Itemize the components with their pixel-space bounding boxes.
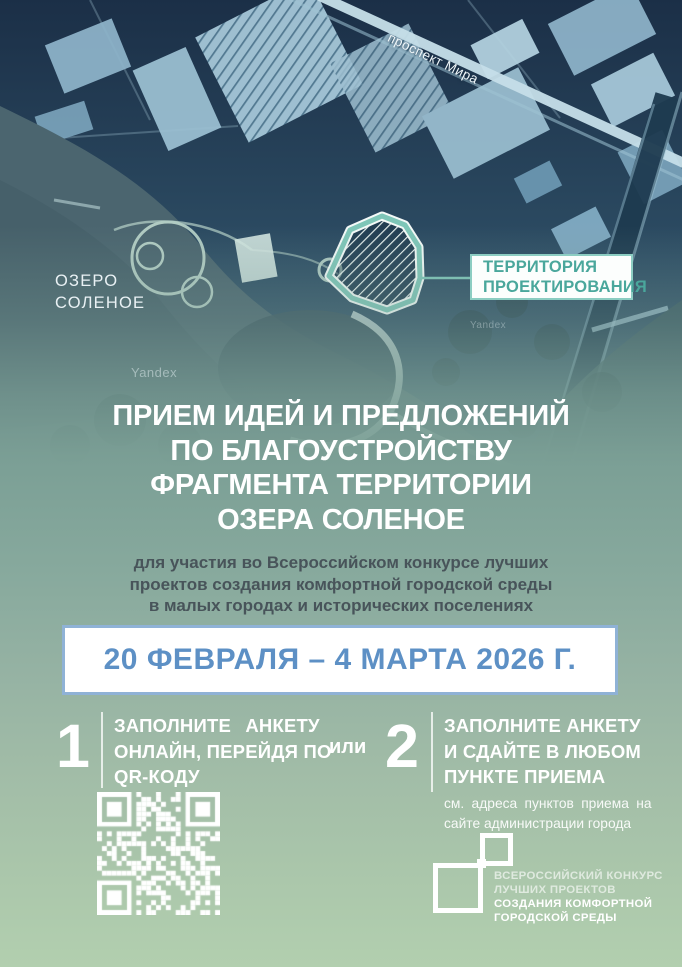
- territory-callout-line: ПРОЕКТИРОВАНИЯ: [483, 277, 631, 297]
- lake-label: ОЗЕРО СОЛЕНОЕ: [55, 271, 145, 314]
- note-line: см. адреса пунктов приема на: [444, 794, 652, 814]
- step-1-line: ЗАПОЛНИТЕ АНКЕТУ: [114, 713, 332, 739]
- title-line: ПО БЛАГОУСТРОЙСТВУ: [0, 434, 682, 469]
- yandex-watermark: Yandex: [470, 320, 506, 331]
- poster: проспект Мира ОЗЕРО СОЛЕНОЕ ТЕРРИТОРИЯ П…: [0, 0, 682, 967]
- lake-label-line: СОЛЕНОЕ: [55, 293, 145, 315]
- step-2-text: ЗАПОЛНИТЕ АНКЕТУ И СДАЙТЕ В ЛЮБОМ ПУНКТЕ…: [444, 713, 641, 790]
- contest-logo-text: ВСЕРОССИЙСКИЙ КОНКУРС ЛУЧШИХ ПРОЕКТОВ СО…: [494, 869, 663, 925]
- step-2-divider: [431, 712, 433, 792]
- or-label: или: [329, 736, 366, 759]
- step-2-line: И СДАЙТЕ В ЛЮБОМ: [444, 739, 641, 765]
- subtitle-line: проектов создания комфортной городской с…: [0, 574, 682, 596]
- subtitle-line: для участия во Всероссийском конкурсе лу…: [0, 552, 682, 574]
- subtitle-line: в малых городах и исторических поселения…: [0, 595, 682, 617]
- territory-callout-line: ТЕРРИТОРИЯ: [483, 257, 631, 277]
- step-2-line: ЗАПОЛНИТЕ АНКЕТУ: [444, 713, 641, 739]
- territory-callout: ТЕРРИТОРИЯ ПРОЕКТИРОВАНИЯ: [470, 254, 633, 300]
- step-1-line: ОНЛАЙН, ПЕРЕЙДЯ ПО: [114, 739, 332, 765]
- title-line: ОЗЕРА СОЛЕНОЕ: [0, 503, 682, 538]
- step-1-line: QR-КОДУ: [114, 764, 332, 790]
- step-2-number: 2: [385, 706, 419, 786]
- step-1-divider: [101, 712, 103, 788]
- logo-line: ГОРОДСКОЙ СРЕДЫ: [494, 911, 663, 925]
- logo-line: ЛУЧШИХ ПРОЕКТОВ: [494, 883, 663, 897]
- yandex-watermark: Yandex: [131, 365, 177, 380]
- step-2-line: ПУНКТЕ ПРИЕМА: [444, 764, 641, 790]
- step-1-text: ЗАПОЛНИТЕ АНКЕТУ ОНЛАЙН, ПЕРЕЙДЯ ПО QR-К…: [114, 713, 332, 790]
- poster-title: ПРИЕМ ИДЕЙ И ПРЕДЛОЖЕНИЙ ПО БЛАГОУСТРОЙС…: [0, 399, 682, 537]
- poster-subtitle: для участия во Всероссийском конкурсе лу…: [0, 552, 682, 617]
- qr-code-icon: [97, 792, 220, 915]
- lake-label-line: ОЗЕРО: [55, 271, 145, 293]
- title-line: ПРИЕМ ИДЕЙ И ПРЕДЛОЖЕНИЙ: [0, 399, 682, 434]
- title-line: ФРАГМЕНТА ТЕРРИТОРИИ: [0, 468, 682, 503]
- logo-line: ВСЕРОССИЙСКИЙ КОНКУРС: [494, 869, 663, 883]
- step-1-number: 1: [56, 706, 90, 786]
- logo-line: СОЗДАНИЯ КОМФОРТНОЙ: [494, 897, 663, 911]
- date-banner: 20 ФЕВРАЛЯ – 4 МАРТА 2026 Г.: [62, 625, 618, 695]
